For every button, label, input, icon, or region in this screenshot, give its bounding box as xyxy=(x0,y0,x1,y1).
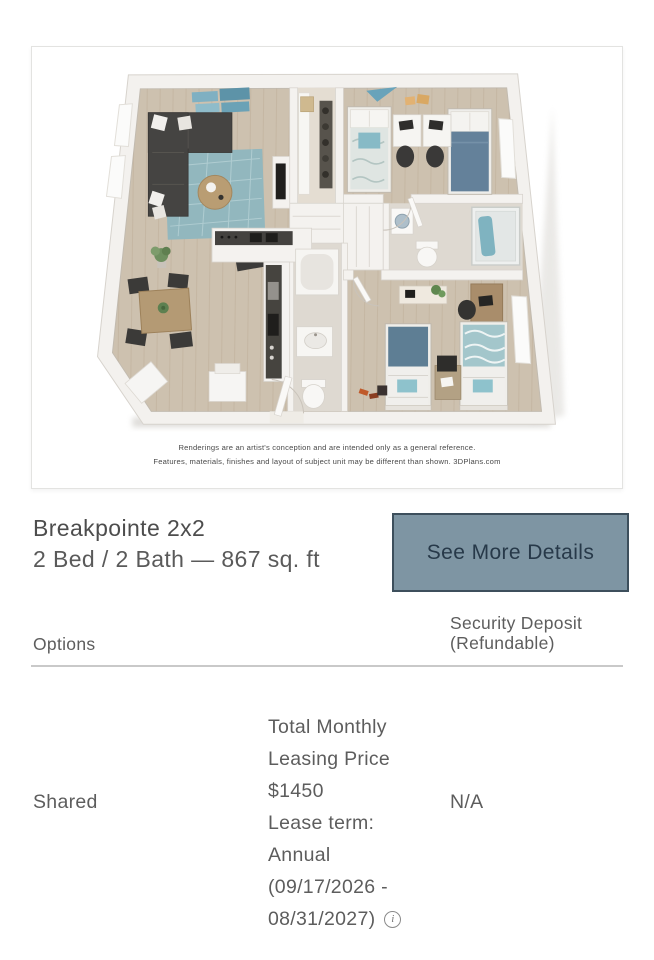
options-column-header: Options xyxy=(33,634,95,655)
floorplan-card: Renderings are an artist's conception an… xyxy=(31,46,623,489)
bench xyxy=(399,285,447,304)
listing-specs: 2 Bed / 2 Bath — 867 sq. ft xyxy=(33,546,320,573)
bed xyxy=(347,107,391,193)
info-icon[interactable]: i xyxy=(384,911,401,928)
floorplan-disclaimer: Renderings are an artist's conception an… xyxy=(32,441,622,468)
option-name-cell: Shared xyxy=(33,791,98,814)
desk xyxy=(423,115,451,147)
office-chair xyxy=(396,146,414,168)
see-more-details-button[interactable]: See More Details xyxy=(392,513,629,592)
dining-chair xyxy=(169,331,193,348)
security-deposit-column-header: Security Deposit(Refundable) xyxy=(450,613,582,653)
pricing-text-last-line: 08/31/2027) xyxy=(268,903,375,935)
bed xyxy=(460,322,508,411)
toilet xyxy=(302,379,326,408)
tv-stand xyxy=(273,157,290,209)
pricing-text: Total MonthlyLeasing Price$1450Lease ter… xyxy=(268,711,433,903)
shower xyxy=(472,207,520,265)
coffee-table xyxy=(198,175,232,209)
white-chair xyxy=(209,372,246,402)
table-divider xyxy=(31,665,623,667)
toilet xyxy=(416,241,438,267)
page-title: Breakpointe 2x2 xyxy=(33,515,205,542)
dining-chair xyxy=(168,273,189,289)
desk xyxy=(393,115,421,147)
bed xyxy=(448,109,492,195)
floorplan-image xyxy=(32,47,622,488)
listing-page: Renderings are an artist's conception an… xyxy=(0,0,654,960)
security-deposit-cell: N/A xyxy=(450,791,483,814)
office-chair xyxy=(426,146,444,168)
floorplan-drawing xyxy=(98,74,565,427)
office-chair xyxy=(458,300,476,320)
bag xyxy=(377,385,387,395)
pricing-cell: Total MonthlyLeasing Price$1450Lease ter… xyxy=(268,711,433,935)
bed xyxy=(385,324,431,411)
